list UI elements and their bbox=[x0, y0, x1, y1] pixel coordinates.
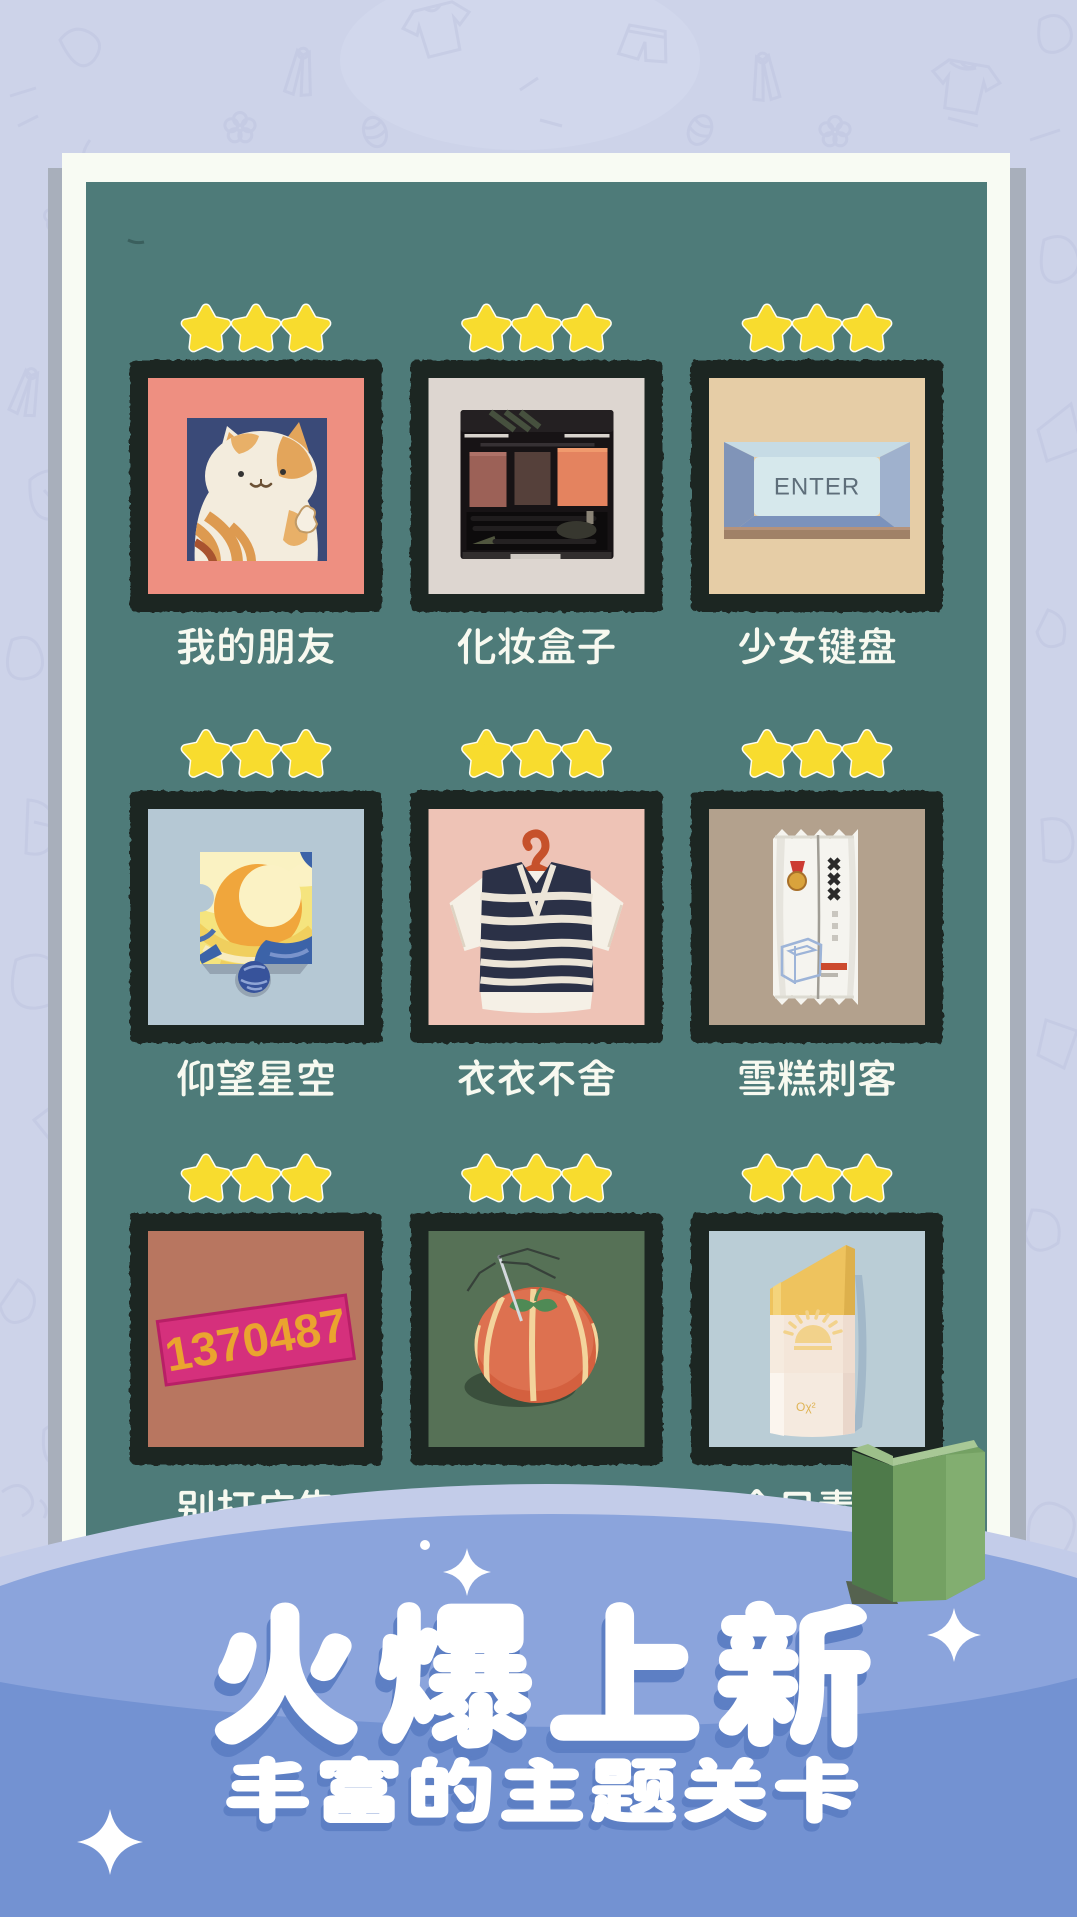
svg-text:ENTER: ENTER bbox=[774, 474, 860, 501]
svg-text:Oχ²: Oχ² bbox=[796, 1400, 816, 1414]
